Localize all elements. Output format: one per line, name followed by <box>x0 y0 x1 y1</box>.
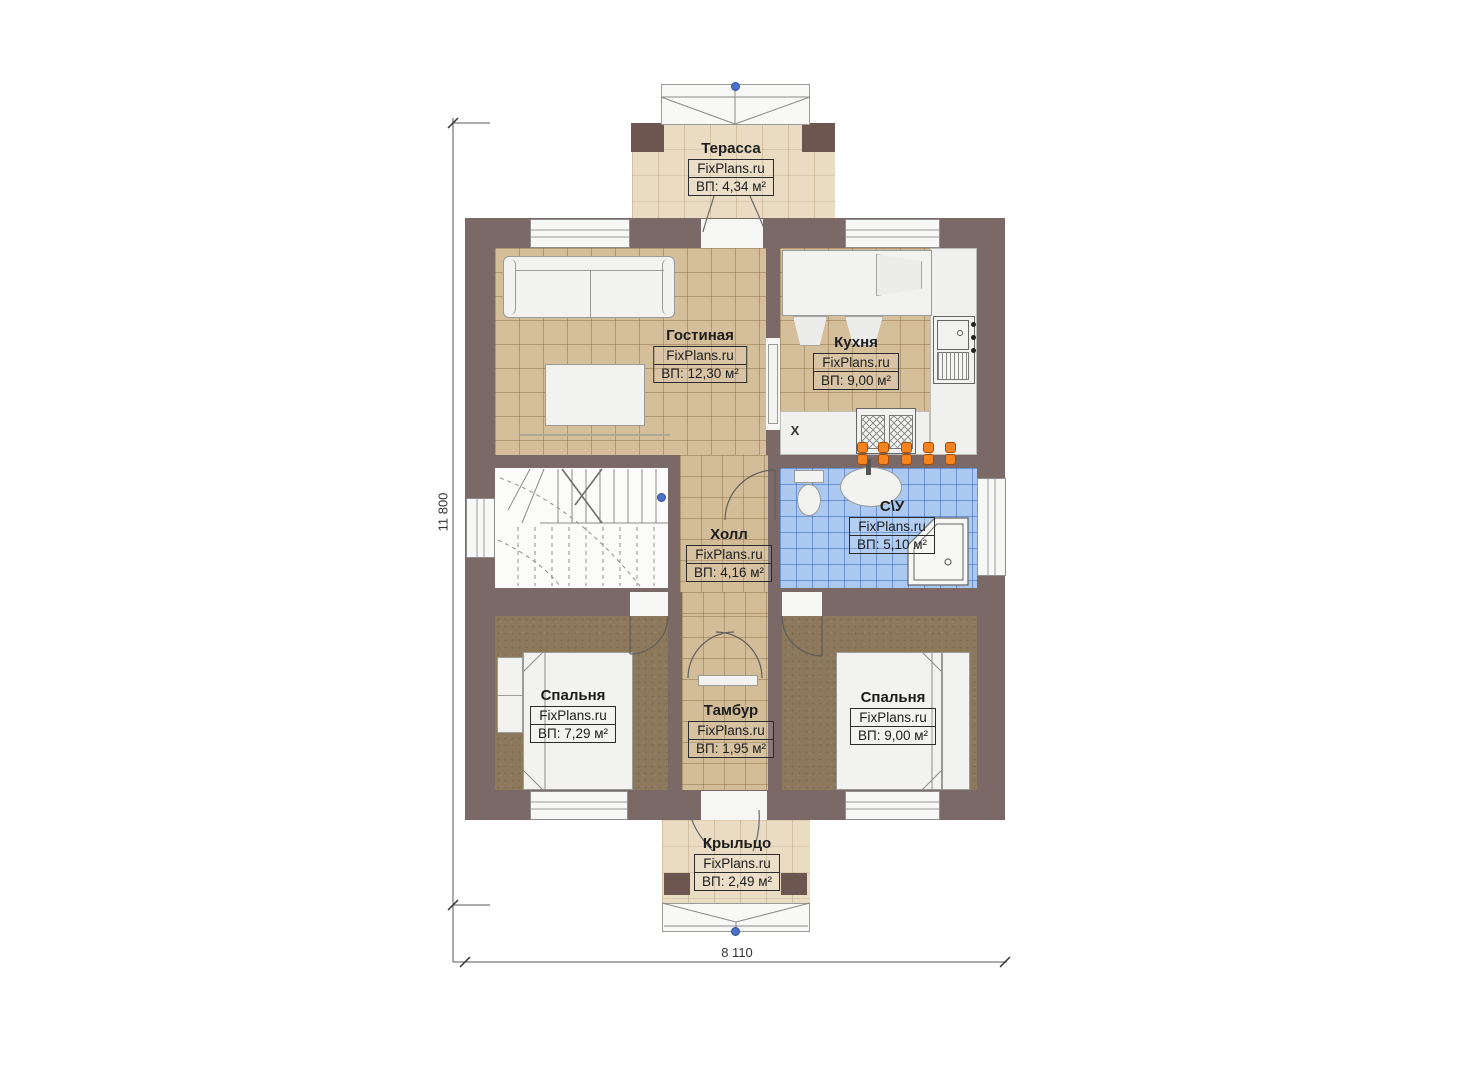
terrace-post-right <box>802 123 835 152</box>
dimension-label-height: 11 800 <box>436 493 451 532</box>
watermark-box: FixPlans.ru ВП: 4,34 м² <box>688 159 774 196</box>
kitchen-connection-dot-1 <box>971 322 976 327</box>
room-label-kitchen: Кухня FixPlans.ru ВП: 9,00 м² <box>813 334 899 390</box>
watermark-box: FixPlans.ru ВП: 12,30 м² <box>653 346 747 383</box>
porch-post-right <box>781 873 807 895</box>
radiator-2 <box>876 441 890 467</box>
room-area: ВП: 7,29 м² <box>531 725 615 742</box>
watermark-box: FixPlans.ru ВП: 5,10 м² <box>849 517 935 554</box>
watermark-site: FixPlans.ru <box>654 347 746 365</box>
sofa <box>503 256 675 318</box>
sofa-armrest-left <box>504 259 516 315</box>
watermark-site: FixPlans.ru <box>687 546 771 564</box>
bed-right-side-unit <box>942 652 970 790</box>
toilet-tank <box>794 470 824 483</box>
porch-post-left <box>664 873 690 895</box>
bedroom-left-door-opening <box>630 592 668 616</box>
room-name: Спальня <box>530 687 616 704</box>
kitchen-sink-faucet-dot <box>957 330 963 336</box>
sofa-seat-divider <box>590 271 591 317</box>
radiator-4 <box>921 441 935 467</box>
terrace-door-opening <box>701 219 763 248</box>
watermark-box: FixPlans.ru ВП: 2,49 м² <box>694 854 780 891</box>
watermark-box: FixPlans.ru ВП: 1,95 м² <box>688 721 774 758</box>
radiator-dot <box>923 454 934 465</box>
floor-plan: X <box>0 0 1474 1080</box>
living-room-table <box>545 364 645 426</box>
watermark-box: FixPlans.ru ВП: 9,00 м² <box>850 708 936 745</box>
room-name: Холл <box>686 526 772 543</box>
watermark-site: FixPlans.ru <box>851 709 935 727</box>
watermark-site: FixPlans.ru <box>850 518 934 536</box>
kitchen-drying-rack <box>937 352 969 380</box>
window-bottom-right <box>845 791 940 820</box>
porch-door-opening <box>701 791 767 820</box>
staircase-floor <box>495 468 668 588</box>
sofa-armrest-right <box>662 259 674 315</box>
window-top-left <box>530 219 630 248</box>
level-marker-dot-stairs <box>657 493 666 502</box>
living-room-rug-line <box>520 434 670 436</box>
room-label-hall: Холл FixPlans.ru ВП: 4,16 м² <box>686 526 772 582</box>
sofa-back <box>516 257 664 271</box>
room-label-porch: Крыльцо FixPlans.ru ВП: 2,49 м² <box>694 835 780 891</box>
radiator-dot <box>857 454 868 465</box>
hall-tambour-opening <box>682 592 768 616</box>
window-left-stairs <box>466 498 495 558</box>
room-name: Спальня <box>850 689 936 706</box>
dimension-label-width: 8 110 <box>721 945 753 960</box>
room-label-bathroom: С\У FixPlans.ru ВП: 5,10 м² <box>849 498 935 554</box>
radiator-dot <box>878 442 889 453</box>
room-name: Гостиная <box>653 327 747 344</box>
radiator-dot <box>857 442 868 453</box>
room-label-terrace: Терасса FixPlans.ru ВП: 4,34 м² <box>688 140 774 196</box>
room-area: ВП: 1,95 м² <box>689 740 773 757</box>
room-name: Терасса <box>688 140 774 157</box>
nightstand-divider <box>498 695 522 696</box>
window-right-bathroom <box>977 478 1006 576</box>
watermark-site: FixPlans.ru <box>814 354 898 372</box>
radiator-dot <box>945 454 956 465</box>
tambour-door-sill <box>698 675 758 686</box>
level-marker-dot-terrace <box>731 82 740 91</box>
toilet-bowl <box>797 484 821 516</box>
kitchen-door-panel <box>768 344 778 424</box>
watermark-site: FixPlans.ru <box>531 707 615 725</box>
watermark-box: FixPlans.ru ВП: 9,00 м² <box>813 353 899 390</box>
radiator-dot <box>878 454 889 465</box>
radiator-dot <box>901 442 912 453</box>
radiator-dot <box>901 454 912 465</box>
bed-left-nightstand <box>497 657 523 733</box>
terrace-post-left <box>631 123 664 152</box>
room-area: ВП: 5,10 м² <box>850 536 934 553</box>
watermark-site: FixPlans.ru <box>689 160 773 178</box>
kitchen-x-marker: X <box>781 414 809 446</box>
kitchen-connection-dot-2 <box>971 335 976 340</box>
room-area: ВП: 4,34 м² <box>689 178 773 195</box>
room-area: ВП: 9,00 м² <box>814 372 898 389</box>
room-name: Кухня <box>813 334 899 351</box>
window-top-right <box>845 219 940 248</box>
room-area: ВП: 9,00 м² <box>851 727 935 744</box>
room-name: С\У <box>849 498 935 515</box>
watermark-site: FixPlans.ru <box>695 855 779 873</box>
watermark-site: FixPlans.ru <box>689 722 773 740</box>
room-area: ВП: 2,49 м² <box>695 873 779 890</box>
bedroom-right-door-opening <box>782 592 822 616</box>
room-area: ВП: 12,30 м² <box>654 365 746 382</box>
kitchen-sink-basin <box>937 320 969 350</box>
room-name: Тамбур <box>688 702 774 719</box>
kitchen-connection-dot-3 <box>971 348 976 353</box>
watermark-box: FixPlans.ru ВП: 7,29 м² <box>530 706 616 743</box>
room-name: Крыльцо <box>694 835 780 852</box>
radiator-dot <box>923 442 934 453</box>
radiator-5 <box>943 441 957 467</box>
room-area: ВП: 4,16 м² <box>687 564 771 581</box>
radiator-dot <box>945 442 956 453</box>
room-label-bedroom-right: Спальня FixPlans.ru ВП: 9,00 м² <box>850 689 936 745</box>
watermark-box: FixPlans.ru ВП: 4,16 м² <box>686 545 772 582</box>
radiator-3 <box>899 441 913 467</box>
window-bottom-left <box>530 791 628 820</box>
radiator-1 <box>855 441 869 467</box>
room-label-tambour: Тамбур FixPlans.ru ВП: 1,95 м² <box>688 702 774 758</box>
room-label-living: Гостиная FixPlans.ru ВП: 12,30 м² <box>653 327 747 383</box>
level-marker-dot-porch <box>731 927 740 936</box>
room-label-bedroom-left: Спальня FixPlans.ru ВП: 7,29 м² <box>530 687 616 743</box>
